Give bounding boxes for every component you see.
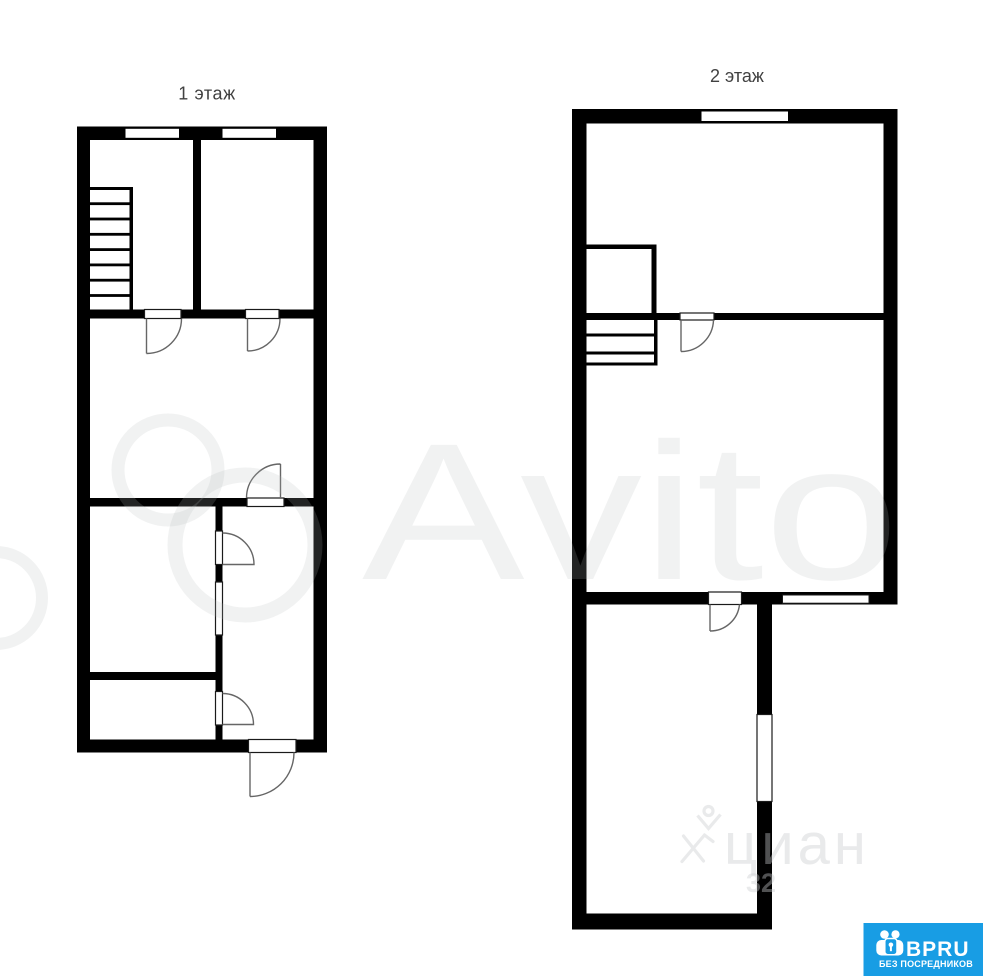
svg-text:2 этаж: 2 этаж bbox=[710, 66, 764, 86]
svg-text:BPRU: BPRU bbox=[906, 938, 970, 961]
svg-text:БЕЗ ПОСРЕДНИКОВ: БЕЗ ПОСРЕДНИКОВ bbox=[879, 959, 973, 969]
svg-text:Avito: Avito bbox=[362, 402, 899, 620]
svg-text:32: 32 bbox=[746, 868, 776, 898]
svg-text:1 этаж: 1 этаж bbox=[178, 84, 236, 104]
